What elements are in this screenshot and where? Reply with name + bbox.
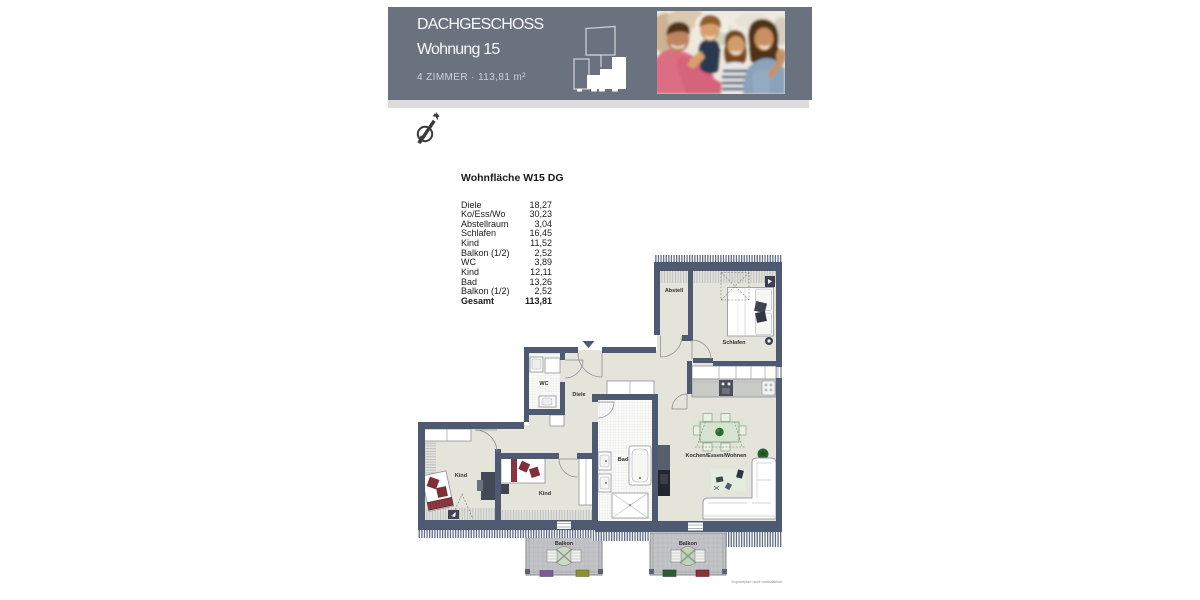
svg-text:Abstell: Abstell [665,288,684,294]
svg-text:Kochen/Essen/Wohnen: Kochen/Essen/Wohnen [685,453,747,459]
svg-text:Kind: Kind [539,491,551,497]
svg-text:Kind: Kind [455,473,467,479]
svg-text:Diele: Diele [572,392,585,398]
svg-text:Balkon: Balkon [679,541,698,547]
svg-text:Exposéplan nicht maßstäblich: Exposéplan nicht maßstäblich [732,580,782,584]
svg-text:WC: WC [539,381,548,387]
svg-text:Balkon: Balkon [555,541,574,547]
svg-text:Schlafen: Schlafen [723,340,747,346]
svg-text:Bad: Bad [618,457,628,463]
